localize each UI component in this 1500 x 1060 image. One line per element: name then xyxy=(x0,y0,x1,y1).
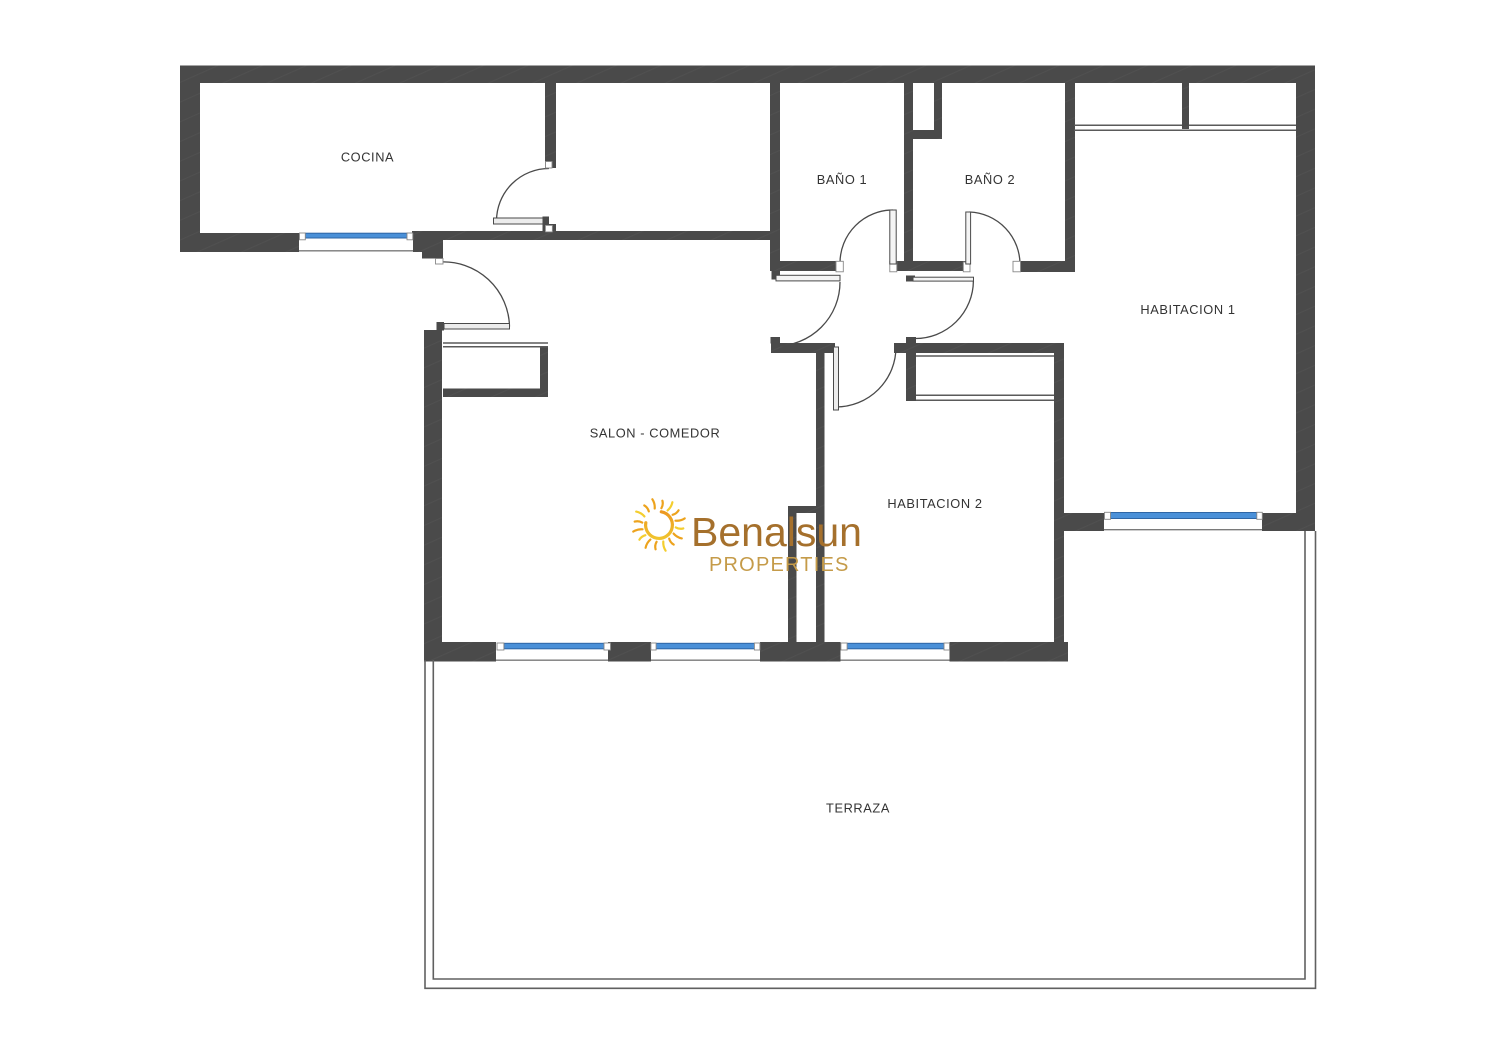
svg-text:TERRAZA: TERRAZA xyxy=(826,801,890,816)
svg-text:PROPERTIES: PROPERTIES xyxy=(709,554,850,576)
svg-text:BAÑO 1: BAÑO 1 xyxy=(817,172,868,187)
svg-text:HABITACION 1: HABITACION 1 xyxy=(1140,302,1235,317)
svg-text:Benalsun: Benalsun xyxy=(691,509,862,555)
svg-text:SALON - COMEDOR: SALON - COMEDOR xyxy=(590,426,721,441)
svg-text:HABITACION 2: HABITACION 2 xyxy=(887,496,982,511)
svg-text:COCINA: COCINA xyxy=(341,150,394,165)
svg-text:BAÑO 2: BAÑO 2 xyxy=(965,172,1016,187)
